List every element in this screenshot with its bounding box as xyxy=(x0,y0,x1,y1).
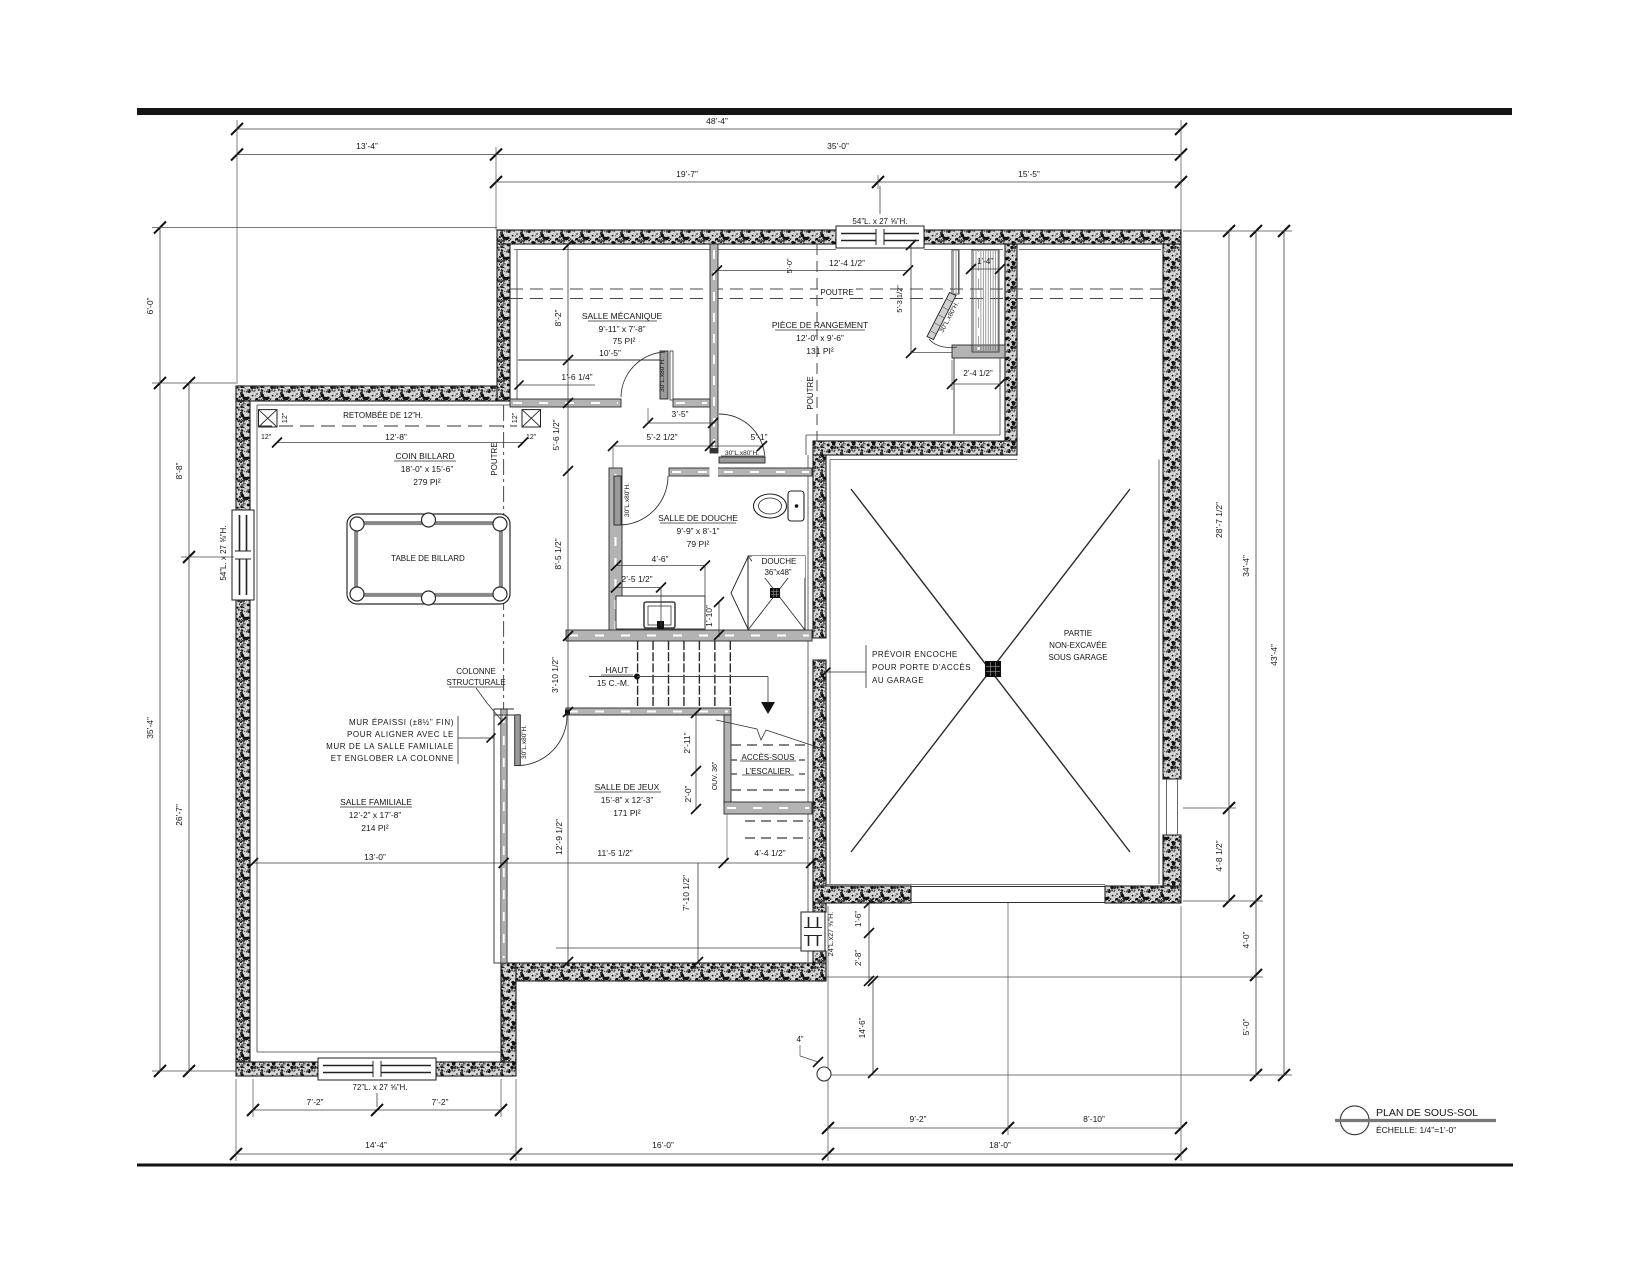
svg-text:26’-7”: 26’-7” xyxy=(174,804,184,826)
svg-text:35’-4”: 35’-4” xyxy=(145,717,155,739)
svg-text:OUV. 36”: OUV. 36” xyxy=(712,761,719,790)
svg-text:30”L.x80”H.: 30”L.x80”H. xyxy=(624,483,631,517)
svg-text:2’-11”: 2’-11” xyxy=(682,732,692,753)
svg-text:2’-0”: 2’-0” xyxy=(683,785,693,802)
svg-text:171 PI²: 171 PI² xyxy=(613,808,641,818)
svg-text:18’-0”: 18’-0” xyxy=(989,1140,1011,1150)
svg-text:1’-10”: 1’-10” xyxy=(704,605,714,627)
svg-text:79 PI²: 79 PI² xyxy=(687,539,710,549)
svg-text:7’-10 1/2”: 7’-10 1/2” xyxy=(681,875,691,911)
svg-text:NON-EXCAVÉE: NON-EXCAVÉE xyxy=(1049,641,1107,650)
svg-text:RETOMBÉE DE 12”H.: RETOMBÉE DE 12”H. xyxy=(343,411,423,420)
svg-text:MUR DE LA SALLE FAMILIALE: MUR DE LA SALLE FAMILIALE xyxy=(326,742,454,751)
svg-text:48’-4”: 48’-4” xyxy=(706,116,728,126)
svg-text:9’-2”: 9’-2” xyxy=(909,1114,926,1124)
svg-text:3’-10 1/2”: 3’-10 1/2” xyxy=(550,657,560,693)
svg-text:5’-0”: 5’-0” xyxy=(1241,1018,1251,1035)
svg-text:14’-4”: 14’-4” xyxy=(365,1140,387,1150)
svg-text:7’-2”: 7’-2” xyxy=(306,1097,323,1107)
svg-text:1’-4”: 1’-4” xyxy=(977,257,993,266)
svg-text:STRUCTURALE: STRUCTURALE xyxy=(446,678,505,687)
svg-text:30”L.x80”H.: 30”L.x80”H. xyxy=(659,358,666,392)
svg-text:279 PI²: 279 PI² xyxy=(413,477,441,487)
svg-text:8’-8”: 8’-8” xyxy=(174,462,184,479)
svg-text:TABLE DE BILLARD: TABLE DE BILLARD xyxy=(391,554,465,563)
svg-text:13’-0”: 13’-0” xyxy=(364,852,386,862)
svg-text:2’-5 1/2”: 2’-5 1/2” xyxy=(621,574,652,584)
svg-text:DOUCHE: DOUCHE xyxy=(762,557,797,566)
svg-text:4’-0”: 4’-0” xyxy=(1241,931,1251,948)
svg-text:11’-5 1/2”: 11’-5 1/2” xyxy=(597,848,632,858)
svg-text:75 PI²: 75 PI² xyxy=(613,336,636,346)
svg-text:12’-2” x 17’-8”: 12’-2” x 17’-8” xyxy=(349,810,402,820)
svg-text:54”L. x 27 ⅝”H.: 54”L. x 27 ⅝”H. xyxy=(852,217,907,226)
svg-text:131 PI²: 131 PI² xyxy=(806,346,834,356)
svg-text:24”L.x27 ⅝”H.: 24”L.x27 ⅝”H. xyxy=(828,912,835,956)
svg-text:5’-2 1/2”: 5’-2 1/2” xyxy=(646,432,677,442)
svg-text:ET ENGLOBER LA COLONNE: ET ENGLOBER LA COLONNE xyxy=(331,754,454,763)
svg-text:12’-0” x 9’-6”: 12’-0” x 9’-6” xyxy=(796,333,844,343)
svg-text:ÉCHELLE: 1/4”=1’-0”: ÉCHELLE: 1/4”=1’-0” xyxy=(1376,1125,1456,1135)
svg-text:34’-4”: 34’-4” xyxy=(1241,555,1251,577)
svg-text:4’-6”: 4’-6” xyxy=(651,554,668,564)
svg-text:12”: 12” xyxy=(512,412,519,423)
svg-text:16’-0”: 16’-0” xyxy=(652,1140,674,1150)
svg-text:PIÈCE DE RANGEMENT: PIÈCE DE RANGEMENT xyxy=(772,320,868,330)
svg-text:SALLE FAMILIALE: SALLE FAMILIALE xyxy=(340,797,412,807)
svg-text:14’-6”: 14’-6” xyxy=(858,1017,867,1038)
svg-text:5’-6 1/2”: 5’-6 1/2” xyxy=(551,419,561,450)
svg-text:SOUS GARAGE: SOUS GARAGE xyxy=(1048,653,1107,662)
svg-text:AU GARAGE: AU GARAGE xyxy=(872,676,924,685)
svg-text:1’-6”: 1’-6” xyxy=(854,911,863,927)
svg-text:COIN BILLARD: COIN BILLARD xyxy=(395,451,454,461)
svg-text:HAUT: HAUT xyxy=(605,665,628,675)
svg-text:54”L. x 27 ⅝”H.: 54”L. x 27 ⅝”H. xyxy=(219,525,228,580)
svg-text:SALLE DE JEUX: SALLE DE JEUX xyxy=(595,782,660,792)
svg-text:15’-5”: 15’-5” xyxy=(1018,169,1040,179)
svg-text:15’-8” x 12’-3”: 15’-8” x 12’-3” xyxy=(601,795,654,805)
svg-text:PRÉVOIR ENCOCHE: PRÉVOIR ENCOCHE xyxy=(872,650,958,659)
svg-text:POUR ALIGNER AVEC LE: POUR ALIGNER AVEC LE xyxy=(347,730,454,739)
svg-text:12’-4 1/2”: 12’-4 1/2” xyxy=(829,258,865,268)
svg-text:3’-5”: 3’-5” xyxy=(671,409,688,419)
svg-text:2’-4 1/2”: 2’-4 1/2” xyxy=(963,369,993,378)
svg-text:MUR ÉPAISSI (±8½” FIN): MUR ÉPAISSI (±8½” FIN) xyxy=(349,718,454,727)
svg-text:18’-0” x 15’-6”: 18’-0” x 15’-6” xyxy=(401,464,454,474)
svg-text:5’-0”: 5’-0” xyxy=(785,258,794,274)
svg-text:POUTRE: POUTRE xyxy=(820,288,853,297)
svg-text:12”: 12” xyxy=(261,434,272,441)
svg-text:15 C.-M.: 15 C.-M. xyxy=(597,678,630,688)
svg-text:POUTRE: POUTRE xyxy=(806,376,815,409)
svg-text:SALLE MÉCANIQUE: SALLE MÉCANIQUE xyxy=(582,311,663,321)
svg-text:6’-0”: 6’-0” xyxy=(145,297,155,314)
svg-text:PARTIE: PARTIE xyxy=(1064,629,1092,638)
svg-text:COLONNE: COLONNE xyxy=(456,667,496,676)
svg-text:POUR PORTE D’ACCÈS: POUR PORTE D’ACCÈS xyxy=(872,663,971,672)
svg-text:43’-4”: 43’-4” xyxy=(1269,644,1279,666)
svg-text:4’-4 1/2”: 4’-4 1/2” xyxy=(754,848,785,858)
svg-text:4’-8 1/2”: 4’-8 1/2” xyxy=(1214,840,1224,871)
svg-text:36”x48”: 36”x48” xyxy=(764,568,791,577)
svg-text:4”: 4” xyxy=(796,1035,803,1044)
svg-text:10’-5”: 10’-5” xyxy=(599,348,621,358)
svg-text:5’-1”: 5’-1” xyxy=(750,432,767,442)
svg-text:12’-8”: 12’-8” xyxy=(385,432,407,442)
svg-text:PLAN DE SOUS-SOL: PLAN DE SOUS-SOL xyxy=(1376,1107,1478,1119)
svg-text:35’-0”: 35’-0” xyxy=(827,141,849,151)
svg-text:8’-10”: 8’-10” xyxy=(1083,1114,1105,1124)
svg-text:72”L. x 27 ⅝”H.: 72”L. x 27 ⅝”H. xyxy=(352,1083,407,1092)
svg-text:214 PI²: 214 PI² xyxy=(361,823,389,833)
svg-text:30”L.x80”H.: 30”L.x80”H. xyxy=(521,725,528,759)
svg-text:7’-2”: 7’-2” xyxy=(431,1097,448,1107)
svg-text:8’-5 1/2”: 8’-5 1/2” xyxy=(553,538,563,569)
svg-text:8’-2”: 8’-2” xyxy=(553,309,563,326)
svg-text:2’-8”: 2’-8” xyxy=(854,950,863,966)
svg-text:SALLE DE DOUCHE: SALLE DE DOUCHE xyxy=(658,513,738,523)
svg-text:1’-6 1/4”: 1’-6 1/4” xyxy=(561,372,592,382)
svg-text:13’-4”: 13’-4” xyxy=(356,141,378,151)
svg-text:9’-11” x 7’-8”: 9’-11” x 7’-8” xyxy=(598,324,645,334)
svg-text:9’-9” x 8’-1”: 9’-9” x 8’-1” xyxy=(677,526,720,536)
svg-text:12’-9 1/2”: 12’-9 1/2” xyxy=(554,819,564,855)
svg-text:POUTRE: POUTRE xyxy=(490,442,499,475)
svg-text:19’-7”: 19’-7” xyxy=(676,169,698,179)
svg-text:28’-7 1/2”: 28’-7 1/2” xyxy=(1214,502,1224,538)
svg-text:12”: 12” xyxy=(282,412,289,423)
svg-text:5’-3 1/2”: 5’-3 1/2” xyxy=(895,285,904,313)
